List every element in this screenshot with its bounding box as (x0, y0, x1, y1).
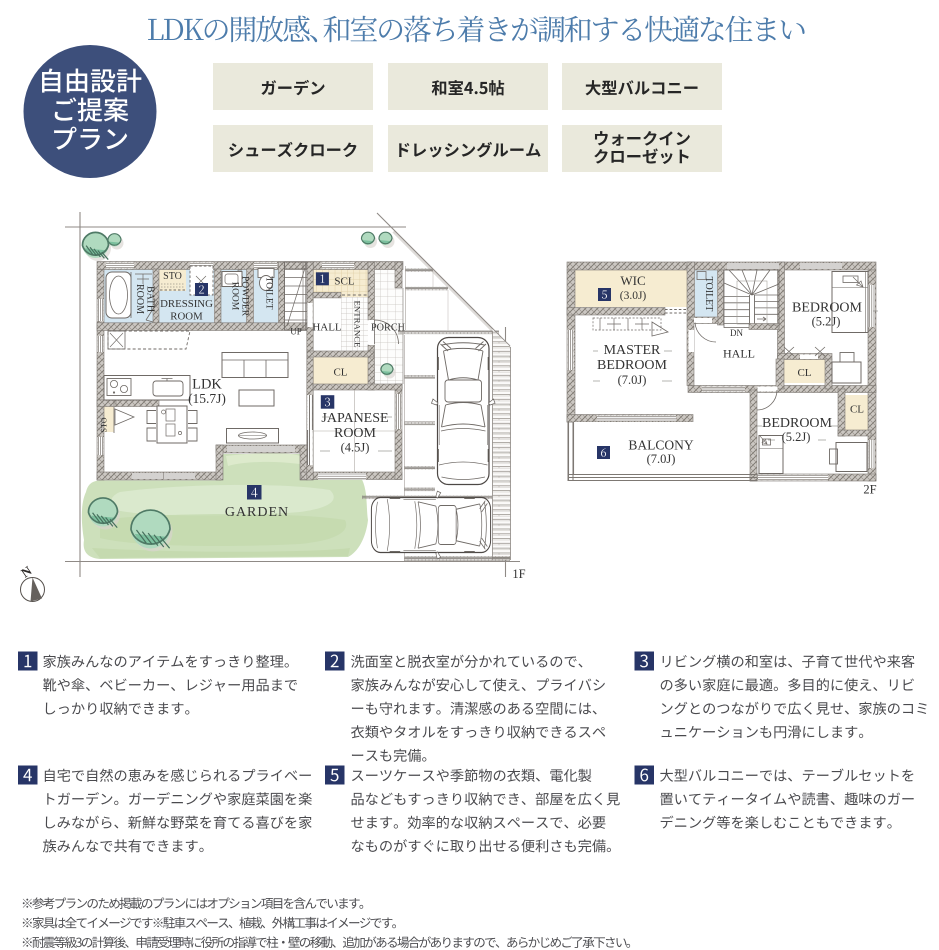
svg-text:ENTRANCE: ENTRANCE (353, 301, 363, 348)
svg-text:POWDER: POWDER (240, 276, 250, 317)
svg-text:(5.2J): (5.2J) (782, 430, 811, 444)
svg-text:ROOM: ROOM (230, 282, 240, 311)
svg-text:2F: 2F (863, 483, 876, 497)
svg-text:(3.0J): (3.0J) (620, 290, 647, 302)
svg-text:HALL: HALL (723, 347, 755, 361)
svg-text:TOILET: TOILET (703, 277, 714, 312)
svg-text:BALCONY: BALCONY (628, 438, 694, 453)
svg-text:CL: CL (797, 367, 811, 379)
svg-text:(15.7J): (15.7J) (188, 391, 226, 406)
svg-text:BEDROOM: BEDROOM (762, 416, 833, 431)
svg-text:STO: STO (100, 417, 109, 432)
svg-text:CL: CL (333, 367, 347, 379)
svg-text:HALL: HALL (312, 322, 342, 334)
svg-text:MASTER: MASTER (604, 343, 661, 358)
svg-text:BATH: BATH (145, 286, 156, 312)
svg-text:(5.2J): (5.2J) (812, 315, 841, 329)
svg-text:TOILET: TOILET (264, 276, 274, 309)
svg-text:BEDROOM: BEDROOM (792, 301, 863, 316)
svg-text:(4.5J): (4.5J) (341, 441, 370, 455)
svg-text:UP: UP (290, 327, 302, 337)
svg-text:STO: STO (163, 271, 182, 282)
svg-text:WIC: WIC (620, 273, 645, 288)
svg-text:ROOM: ROOM (170, 311, 203, 323)
svg-text:DRESSING: DRESSING (160, 298, 213, 310)
svg-text:ROOM: ROOM (334, 426, 377, 441)
svg-text:(7.0J): (7.0J) (647, 452, 676, 466)
svg-text:BEDROOM: BEDROOM (597, 358, 668, 373)
svg-text:DN: DN (730, 328, 743, 338)
svg-text:CL: CL (850, 404, 864, 416)
svg-text:GARDEN: GARDEN (225, 505, 289, 520)
svg-text:JAPANESE: JAPANESE (321, 411, 388, 426)
svg-text:1F: 1F (512, 567, 525, 581)
svg-text:SCL: SCL (334, 276, 354, 288)
svg-text:(7.0J): (7.0J) (618, 373, 647, 387)
svg-text:ROOM: ROOM (134, 284, 145, 314)
